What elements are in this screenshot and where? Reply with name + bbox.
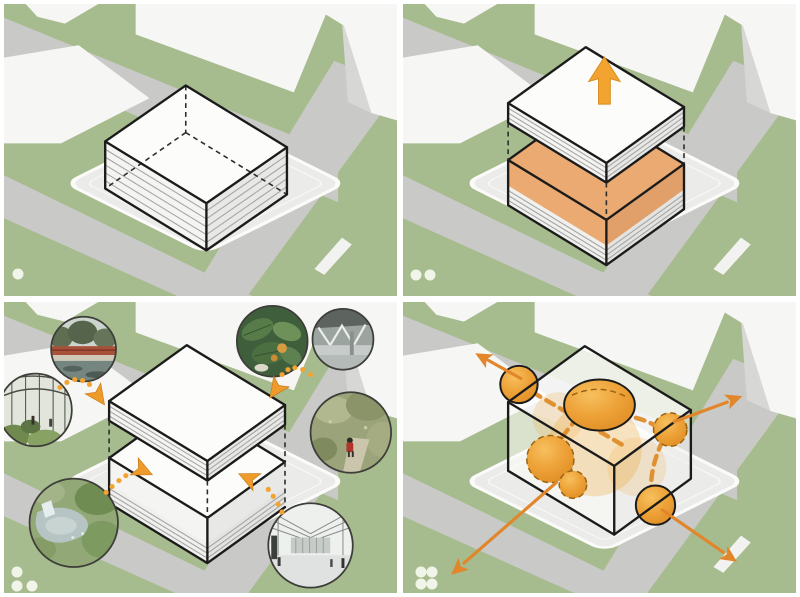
split-massing-icon xyxy=(403,4,796,296)
step-indicator-dot xyxy=(424,269,435,280)
step-indicator-dot xyxy=(410,269,421,280)
flow-bubble-icon xyxy=(564,379,635,430)
circulation-flows-diagram xyxy=(403,302,796,594)
step-indicator-dot xyxy=(427,579,438,590)
step-indicator-dot xyxy=(11,581,22,592)
step-indicator-dot xyxy=(12,268,23,279)
step-indicator-dot xyxy=(11,567,22,578)
panel-lift-roof-insert-void xyxy=(403,4,796,296)
panel-existing-massing xyxy=(4,4,397,296)
diagram-grid xyxy=(0,0,800,597)
massing-box-icon xyxy=(4,4,397,296)
bridge-underside-photo xyxy=(313,308,374,369)
atrium-hall-photo xyxy=(268,503,352,587)
step-indicator-dot xyxy=(415,579,426,590)
step-indicator-dot xyxy=(415,567,426,578)
panel-circulation-bubble-flows xyxy=(403,302,796,594)
panel-program-reference-insets xyxy=(4,302,397,594)
program-insets-diagram xyxy=(4,302,397,594)
flow-bubble-icon xyxy=(559,470,587,497)
step-indicator-dot xyxy=(427,567,438,578)
step-indicator-dot xyxy=(26,581,37,592)
tropical-foliage-photo xyxy=(237,305,308,376)
